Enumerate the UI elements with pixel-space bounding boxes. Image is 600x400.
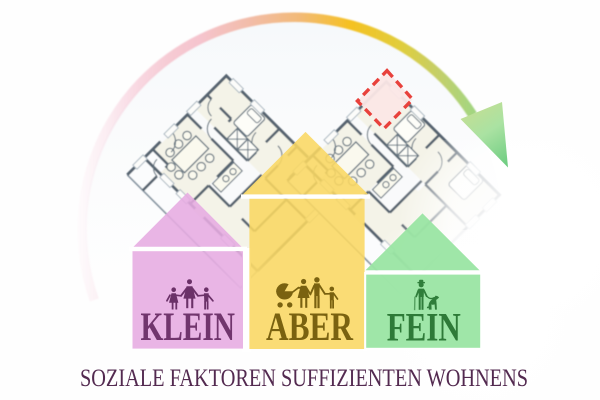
svg-text:ABER: ABER bbox=[266, 304, 354, 349]
svg-text:SOZIALE FAKTOREN SUFFIZIENTEN: SOZIALE FAKTOREN SUFFIZIENTEN WOHNENS bbox=[80, 365, 528, 392]
svg-text:FEIN: FEIN bbox=[387, 305, 461, 350]
svg-text:KLEIN: KLEIN bbox=[140, 304, 235, 349]
